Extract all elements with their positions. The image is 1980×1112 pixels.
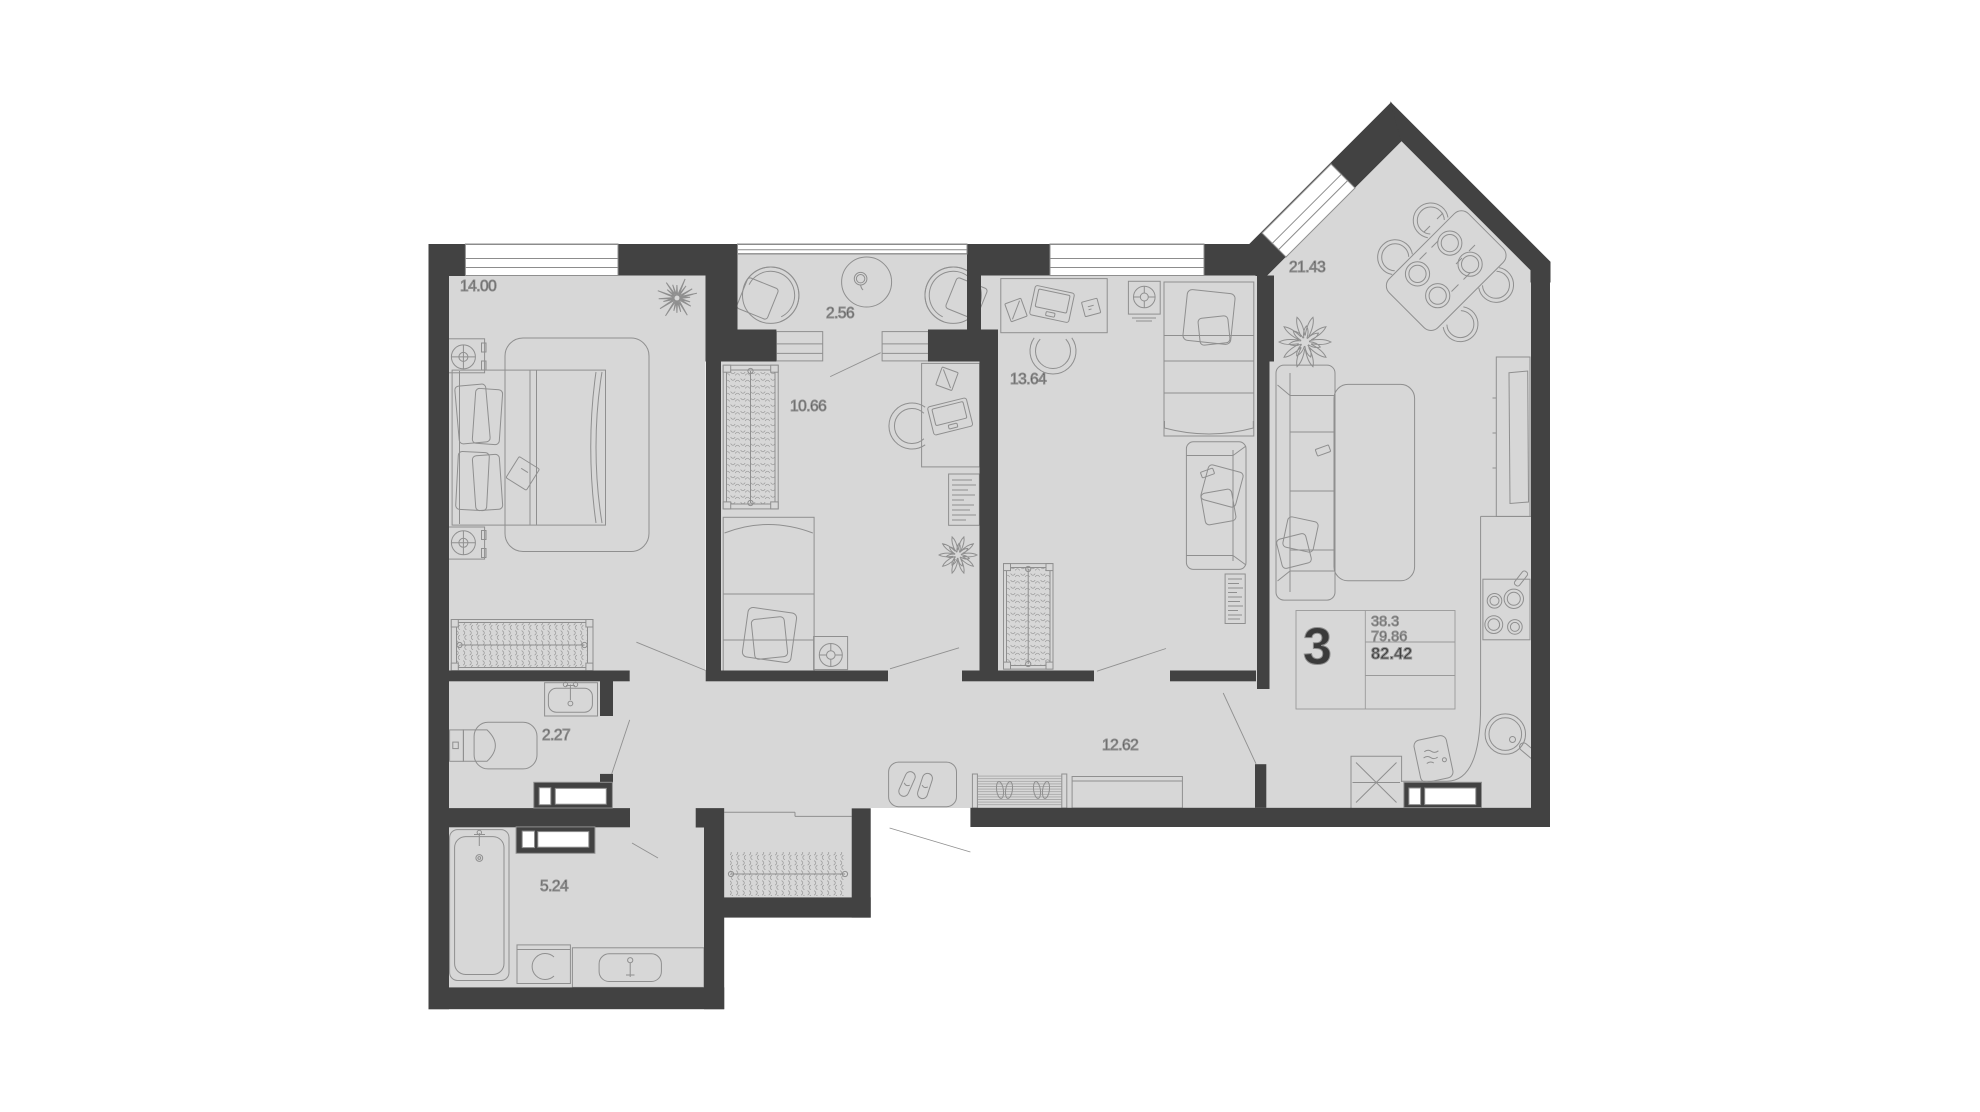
svg-text:14.00: 14.00 <box>460 278 497 295</box>
svg-text:2.27: 2.27 <box>542 727 570 744</box>
svg-text:10.66: 10.66 <box>790 398 826 415</box>
svg-text:12.62: 12.62 <box>1102 737 1138 754</box>
svg-text:21.43: 21.43 <box>1289 259 1325 276</box>
svg-text:5.24: 5.24 <box>540 878 569 895</box>
svg-text:79.86: 79.86 <box>1371 629 1407 645</box>
svg-text:38.3: 38.3 <box>1371 614 1399 630</box>
svg-text:2.56: 2.56 <box>826 305 854 322</box>
svg-text:13.64: 13.64 <box>1010 371 1047 388</box>
svg-text:82.42: 82.42 <box>1371 645 1412 663</box>
svg-text:3: 3 <box>1303 618 1332 676</box>
